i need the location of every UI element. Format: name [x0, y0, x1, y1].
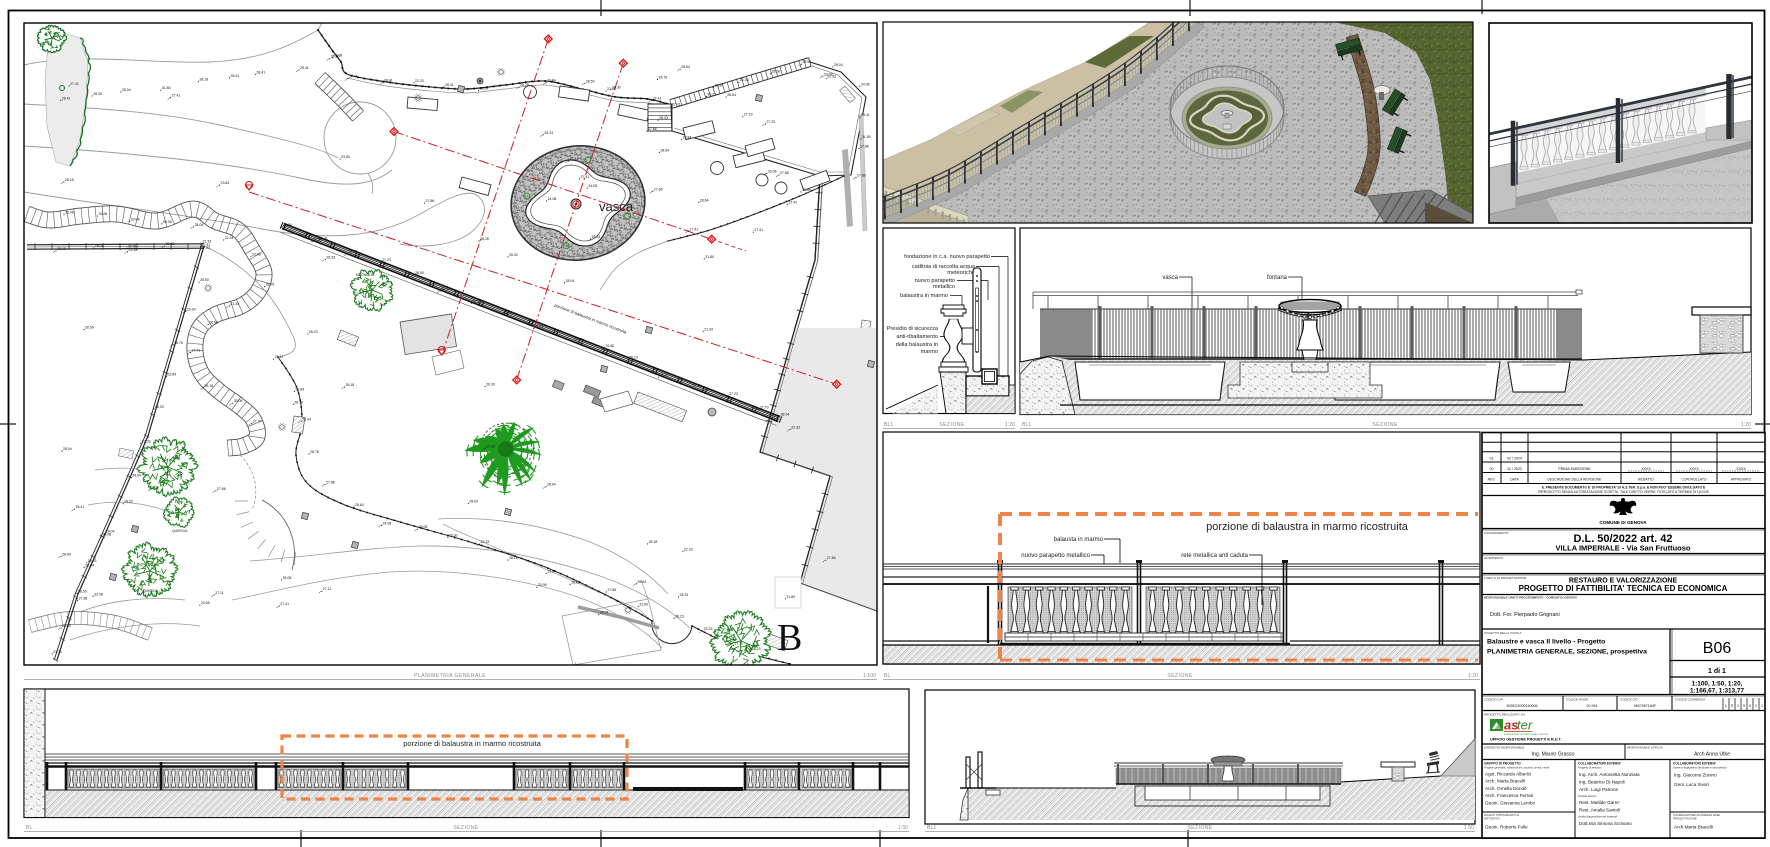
svg-text:SEZIONE: SEZIONE: [1372, 422, 1398, 428]
svg-text:23.84: 23.84: [547, 79, 556, 83]
svg-text:9: 9: [1749, 704, 1751, 708]
svg-text:31.80: 31.80: [162, 86, 171, 90]
svg-text:28.50: 28.50: [480, 86, 489, 90]
svg-text:B39D22000140006: B39D22000140006: [1507, 704, 1538, 708]
svg-text:B: B: [777, 617, 802, 659]
svg-text:20 994: 20 994: [1587, 704, 1598, 708]
svg-text:26.30: 26.30: [348, 250, 357, 254]
svg-text:33.08: 33.08: [99, 212, 108, 216]
svg-text:28.64: 28.64: [660, 148, 669, 152]
svg-text:Rest. Amalia Santoli: Rest. Amalia Santoli: [1579, 808, 1620, 813]
svg-text:02 / 2024: 02 / 2024: [1507, 457, 1522, 461]
svg-text:28.50: 28.50: [415, 271, 424, 275]
svg-text:27.41: 27.41: [319, 237, 328, 241]
svg-text:28.33: 28.33: [680, 593, 689, 597]
svg-text:ter: ter: [1517, 718, 1533, 733]
svg-text:22.33: 22.33: [481, 540, 490, 544]
svg-text:Ing. Beatrice Di Napoli: Ing. Beatrice Di Napoli: [1579, 780, 1625, 785]
svg-text:Balaustre e vasca II livello -: Balaustre e vasca II livello - Progetto: [1487, 639, 1605, 646]
svg-text:28.64: 28.64: [727, 93, 736, 97]
svg-text:27.86: 27.86: [860, 145, 869, 149]
svg-text:28.64: 28.64: [62, 552, 71, 556]
svg-text:CODICE COMMESSA: CODICE COMMESSA: [1675, 698, 1705, 702]
svg-text:99079571A9F: 99079571A9F: [1634, 704, 1657, 708]
svg-text:26.30: 26.30: [509, 253, 518, 257]
svg-text:22.33: 22.33: [791, 425, 800, 429]
svg-text:CONTROLLATO: CONTROLLATO: [1681, 478, 1706, 482]
svg-text:Opere di ingegneria struttural: Opere di ingegneria strutturale e natura…: [1673, 766, 1727, 770]
svg-text:9: 9: [1743, 704, 1745, 708]
svg-text:28.18: 28.18: [480, 237, 489, 241]
svg-text:27.11: 27.11: [672, 103, 681, 107]
svg-text:27.86: 27.86: [217, 487, 226, 491]
svg-text:Progetto di restauro: Progetto di restauro: [1578, 766, 1602, 770]
svg-text:26.30: 26.30: [486, 382, 495, 386]
svg-text:28.04: 28.04: [547, 483, 556, 487]
svg-text:28.50: 28.50: [85, 326, 94, 330]
svg-text:28.64: 28.64: [209, 321, 218, 325]
svg-text:28.64: 28.64: [681, 65, 690, 69]
svg-text:28.23: 28.23: [629, 355, 638, 359]
svg-text:28.76: 28.76: [294, 400, 303, 404]
svg-text:28.64: 28.64: [571, 581, 580, 585]
svg-text:1:166,67, 1:313,77: 1:166,67, 1:313,77: [1690, 688, 1744, 695]
svg-text:23.84: 23.84: [547, 569, 556, 573]
svg-text:28.04: 28.04: [95, 244, 104, 248]
svg-text:BL1: BL1: [884, 422, 893, 428]
svg-text:XXXX: XXXX: [1641, 467, 1651, 471]
svg-text:27.86: 27.86: [648, 127, 657, 131]
svg-text:28.50: 28.50: [78, 589, 87, 593]
svg-text:28.76: 28.76: [659, 76, 668, 80]
svg-text:27.41: 27.41: [581, 175, 590, 179]
svg-text:anti-ribaltamento: anti-ribaltamento: [896, 334, 938, 340]
svg-text:metallico: metallico: [933, 284, 955, 290]
svg-text:33.08: 33.08: [131, 217, 140, 221]
svg-text:PRIMA EMISSIONE: PRIMA EMISSIONE: [1558, 467, 1591, 471]
svg-text:28.23: 28.23: [707, 93, 716, 97]
svg-text:28.18: 28.18: [509, 556, 518, 560]
svg-text:BL: BL: [884, 673, 890, 679]
svg-text:27.86: 27.86: [857, 174, 866, 178]
svg-text:28.23: 28.23: [592, 235, 601, 239]
svg-text:24.08: 24.08: [383, 521, 392, 525]
svg-text:22.33: 22.33: [415, 79, 424, 83]
svg-text:21.34: 21.34: [225, 236, 234, 240]
svg-text:SEZIONE: SEZIONE: [1187, 825, 1213, 831]
svg-text:APPROVATO: APPROVATO: [1730, 478, 1752, 482]
svg-text:27.11: 27.11: [735, 641, 744, 645]
svg-text:1 di 1: 1 di 1: [1708, 668, 1726, 675]
svg-text:1:100, 1:50, 1:20,: 1:100, 1:50, 1:20,: [1692, 681, 1743, 688]
svg-text:28.23: 28.23: [309, 330, 318, 334]
svg-text:33.08: 33.08: [65, 210, 74, 214]
svg-text:31.80: 31.80: [802, 188, 811, 192]
svg-text:vasca: vasca: [1162, 275, 1178, 281]
svg-text:DESCRIZIONE DELLA REVISIONE: DESCRIZIONE DELLA REVISIONE: [1547, 478, 1602, 482]
svg-text:22.33: 22.33: [827, 75, 836, 79]
svg-text:28.50: 28.50: [772, 70, 781, 74]
svg-text:XXXX: XXXX: [1736, 467, 1746, 471]
svg-text:Arch. Francesca Ferrari: Arch. Francesca Ferrari: [1485, 793, 1533, 798]
svg-text:AZIENDA SERVIZI TERRITORIALI G: AZIENDA SERVIZI TERRITORIALI GENOVA: [1504, 733, 1548, 736]
svg-text:Arch Anna Utke: Arch Anna Utke: [1694, 752, 1730, 758]
svg-text:27.11: 27.11: [535, 324, 544, 328]
svg-text:28.18: 28.18: [199, 78, 208, 82]
svg-text:27.23: 27.23: [486, 444, 495, 448]
svg-text:VILLA IMPERIALE - Via San Frut: VILLA IMPERIALE - Via San Fruttuoso: [1555, 544, 1690, 553]
svg-text:BL1: BL1: [1022, 422, 1031, 428]
svg-text:SEZIONE: SEZIONE: [939, 422, 965, 428]
svg-text:33.08: 33.08: [234, 399, 243, 403]
svg-text:28.04: 28.04: [302, 417, 311, 421]
svg-text:CODICE CIG: CODICE CIG: [1620, 698, 1639, 702]
svg-text:COLLABORATORI ESTERNI: COLLABORATORI ESTERNI: [1578, 762, 1620, 766]
svg-text:27.23: 27.23: [473, 300, 482, 304]
svg-text:31.80: 31.80: [862, 135, 871, 139]
svg-text:28.04: 28.04: [85, 564, 94, 568]
svg-text:L: L: [1725, 704, 1727, 708]
svg-text:Arch Marta Bracelli: Arch Marta Bracelli: [1674, 825, 1713, 830]
svg-text:LIVELLO DI PROGETTAZIONE: LIVELLO DI PROGETTAZIONE: [1484, 576, 1527, 580]
svg-text:28.23: 28.23: [124, 500, 133, 504]
svg-text:MAGNOLIA: MAGNOLIA: [356, 273, 375, 277]
svg-text:1: 1: [1755, 704, 1757, 708]
svg-text:26.30: 26.30: [187, 307, 196, 311]
svg-text:28.41: 28.41: [300, 66, 309, 70]
svg-text:33.08: 33.08: [503, 311, 512, 315]
svg-text:33.08: 33.08: [538, 583, 547, 587]
svg-text:27.11: 27.11: [659, 373, 668, 377]
svg-text:27.41: 27.41: [70, 82, 79, 86]
svg-text:27.86: 27.86: [326, 481, 335, 485]
svg-text:PROGETTO REALIZZATO DA: PROGETTO REALIZZATO DA: [1484, 713, 1525, 717]
svg-text:27.41: 27.41: [192, 348, 201, 352]
svg-text:28.33: 28.33: [155, 405, 164, 409]
svg-text:Dott.ssa Simona Scrivano: Dott.ssa Simona Scrivano: [1579, 821, 1632, 826]
svg-text:SEZIONE: SEZIONE: [453, 825, 479, 831]
svg-text:porzione di balaustra in marmo: porzione di balaustra in marmo ricostrui…: [1206, 521, 1409, 533]
svg-text:ORTOFOTO: ORTOFOTO: [1484, 817, 1501, 821]
svg-text:33.08: 33.08: [283, 576, 292, 580]
svg-text:Ing. Arch. Antonietta Nunziata: Ing. Arch. Antonietta Nunziata: [1579, 772, 1640, 777]
svg-text:33.08: 33.08: [768, 170, 777, 174]
svg-text:PROGETTAZIONE: PROGETTAZIONE: [1673, 817, 1697, 821]
svg-text:REV.: REV.: [1488, 478, 1496, 482]
svg-text:RESPONSABILE UNICO PROCEDIMENT: RESPONSABILE UNICO PROCEDIMENTO - COMUNE…: [1484, 596, 1577, 600]
svg-text:27.86: 27.86: [79, 596, 88, 600]
svg-text:28.33: 28.33: [441, 287, 450, 291]
svg-text:porzione di balaustra in marmo: porzione di balaustra in marmo ricostrui…: [403, 739, 541, 748]
svg-text:31.80: 31.80: [606, 344, 615, 348]
svg-text:28.23: 28.23: [88, 559, 97, 563]
svg-text:OGGETTO DELLA TAVOLA: OGGETTO DELLA TAVOLA: [1484, 631, 1521, 635]
svg-text:RESPONSABILE UFFICIO: RESPONSABILE UFFICIO: [1627, 746, 1664, 750]
svg-text:fontana: fontana: [1267, 275, 1288, 281]
svg-text:Presidio di sicurezza: Presidio di sicurezza: [887, 326, 939, 332]
svg-text:27.70: 27.70: [150, 486, 159, 490]
svg-text:28.64: 28.64: [469, 500, 478, 504]
svg-text:33.08: 33.08: [419, 525, 428, 529]
svg-text:COMUNE DI GENOVA: COMUNE DI GENOVA: [1599, 520, 1647, 525]
svg-text:balausta in marmo: balausta in marmo: [1054, 537, 1104, 543]
svg-text:GRUPPO DI PROGETTO: GRUPPO DI PROGETTO: [1484, 762, 1521, 766]
svg-text:BL: BL: [26, 825, 32, 831]
svg-text:28.04: 28.04: [600, 611, 609, 615]
svg-text:27.70: 27.70: [574, 338, 583, 342]
svg-text:31.80: 31.80: [786, 595, 795, 599]
svg-text:CODICE MOISE: CODICE MOISE: [1566, 698, 1589, 702]
svg-text:28.50: 28.50: [802, 60, 811, 64]
svg-text:Progetto generale, infrastrutt: Progetto generale, infrastrutture, impia…: [1484, 766, 1550, 770]
svg-text:meteoriche: meteoriche: [947, 270, 975, 276]
svg-text:1:20: 1:20: [1468, 673, 1478, 679]
svg-text:28.18: 28.18: [57, 247, 66, 251]
svg-text:21.34: 21.34: [740, 78, 749, 82]
svg-text:UFFICIO GESTIONE PROGETTI E R.: UFFICIO GESTIONE PROGETTI E R.U.T.: [1490, 738, 1562, 742]
svg-text:Geol. Luca Sivori: Geol. Luca Sivori: [1674, 782, 1709, 787]
svg-text:27.41: 27.41: [570, 157, 579, 161]
svg-text:27.41: 27.41: [275, 355, 284, 359]
svg-text:COLLABORATORI ESTERNI: COLLABORATORI ESTERNI: [1673, 762, 1715, 766]
svg-text:DIRIGENTE RESPONSABILE: DIRIGENTE RESPONSABILE: [1484, 746, 1525, 750]
svg-text:Arch. Ornella Dondè: Arch. Ornella Dondè: [1485, 786, 1527, 791]
svg-text:33.08: 33.08: [252, 252, 261, 256]
svg-text:DATA: DATA: [1510, 478, 1519, 482]
svg-text:1:50: 1:50: [898, 825, 908, 831]
svg-text:23.84: 23.84: [341, 155, 350, 159]
svg-text:27.11: 27.11: [693, 384, 702, 388]
svg-text:RIPRODOTTO SENZA AUTORIZZAZION: RIPRODOTTO SENZA AUTORIZZAZIONE SCRITTA.…: [1538, 490, 1709, 494]
svg-text:27.70: 27.70: [760, 405, 769, 409]
svg-text:28.04: 28.04: [195, 223, 204, 227]
svg-text:31.80: 31.80: [705, 255, 714, 259]
svg-text:28.41: 28.41: [256, 70, 265, 74]
svg-text:22.33: 22.33: [142, 440, 151, 444]
svg-text:QUERCIA: QUERCIA: [143, 589, 159, 593]
svg-text:27.86: 27.86: [827, 556, 836, 560]
svg-text:27.11: 27.11: [323, 587, 332, 591]
svg-text:27.41: 27.41: [653, 96, 662, 100]
svg-text:28.33: 28.33: [326, 255, 335, 259]
svg-text:28.76: 28.76: [310, 450, 319, 454]
svg-text:28.18: 28.18: [346, 383, 355, 387]
svg-text:28.50: 28.50: [200, 278, 209, 282]
svg-text:24.08: 24.08: [334, 54, 343, 58]
svg-text:28.41: 28.41: [62, 96, 71, 100]
svg-text:28.04: 28.04: [834, 63, 843, 67]
svg-text:28.50: 28.50: [586, 79, 595, 83]
svg-text:28.41: 28.41: [384, 79, 393, 83]
svg-text:nuovo parapetto metallico: nuovo parapetto metallico: [1021, 553, 1090, 559]
svg-text:27.70: 27.70: [253, 420, 262, 424]
svg-text:28.41: 28.41: [861, 113, 870, 117]
svg-text:28.04: 28.04: [566, 279, 575, 283]
svg-text:27.86: 27.86: [780, 171, 789, 175]
svg-text:27.86: 27.86: [426, 199, 435, 203]
svg-text:28.23: 28.23: [675, 614, 684, 618]
svg-text:Rest. Matilde Garre': Rest. Matilde Garre': [1579, 800, 1620, 805]
svg-text:Arch. Luigi Patrone: Arch. Luigi Patrone: [1579, 787, 1619, 792]
svg-text:1:20: 1:20: [1741, 422, 1751, 428]
svg-text:27.41: 27.41: [172, 94, 181, 98]
svg-text:28.18: 28.18: [166, 242, 175, 246]
svg-text:27.41: 27.41: [202, 243, 211, 247]
svg-text:PLANIMETRIA GENERALE: PLANIMETRIA GENERALE: [414, 673, 486, 679]
svg-text:24.08: 24.08: [588, 184, 597, 188]
svg-text:QUERCIA: QUERCIA: [172, 529, 188, 533]
svg-text:Analisi diagnostiche dei mater: Analisi diagnostiche dei materiali: [1577, 815, 1617, 819]
svg-text:Dott. For. Pierpaolo Grignani: Dott. For. Pierpaolo Grignani: [1490, 612, 1560, 618]
svg-text:28.04: 28.04: [781, 412, 790, 416]
svg-text:28.50: 28.50: [715, 83, 724, 87]
svg-text:28.41: 28.41: [445, 83, 454, 87]
svg-text:27.41: 27.41: [754, 228, 763, 232]
svg-text:23.84: 23.84: [296, 388, 305, 392]
svg-text:della balaustra in: della balaustra in: [896, 342, 938, 348]
svg-text:28.64: 28.64: [700, 198, 709, 202]
svg-text:1:20: 1:20: [1005, 422, 1015, 428]
svg-text:28.76: 28.76: [174, 341, 183, 345]
svg-text:27.86: 27.86: [283, 223, 292, 227]
svg-text:28.18: 28.18: [65, 178, 74, 182]
svg-text:27.70: 27.70: [53, 650, 62, 654]
svg-text:INTERVENTO: INTERVENTO: [1484, 556, 1504, 560]
svg-text:balaustra in marmo: balaustra in marmo: [900, 293, 948, 299]
svg-text:PLANIMETRIA GENERALE, SEZIONE,: PLANIMETRIA GENERALE, SEZIONE, prospetti…: [1487, 649, 1647, 656]
svg-text:21.34: 21.34: [129, 248, 138, 252]
svg-text:27.23: 27.23: [767, 120, 776, 124]
svg-text:27.86: 27.86: [608, 588, 617, 592]
svg-text:marmo: marmo: [921, 349, 938, 355]
svg-text:22.33: 22.33: [704, 627, 713, 631]
svg-text:Ing. Giacomo Zunino: Ing. Giacomo Zunino: [1674, 773, 1717, 778]
svg-text:28.76: 28.76: [520, 83, 529, 87]
svg-text:fondazione in c.a. nuovo parap: fondazione in c.a. nuovo parapetto: [904, 254, 990, 260]
svg-text:28.41: 28.41: [76, 505, 85, 509]
svg-text:28.33: 28.33: [93, 92, 102, 96]
svg-text:Geom. Giovanna Lembo: Geom. Giovanna Lembo: [1485, 800, 1535, 805]
svg-text:27.86: 27.86: [654, 187, 663, 191]
svg-text:28.33: 28.33: [544, 131, 553, 135]
svg-text:B06: B06: [1703, 640, 1732, 657]
svg-text:24.08: 24.08: [548, 197, 557, 201]
svg-text:28.04: 28.04: [63, 447, 72, 451]
svg-text:28.64: 28.64: [355, 503, 364, 507]
svg-text:28.23: 28.23: [752, 647, 761, 651]
svg-text:Scheda tecnica: Scheda tecnica: [1578, 794, 1597, 798]
svg-text:33.08: 33.08: [163, 220, 172, 224]
svg-text:24.08: 24.08: [103, 532, 112, 536]
svg-text:11 / 2023: 11 / 2023: [1507, 467, 1522, 471]
svg-text:1:50: 1:50: [1464, 825, 1474, 831]
svg-text:XXXX: XXXX: [1689, 467, 1699, 471]
svg-text:IL PRESENTE DOCUMENTO E' DI PR: IL PRESENTE DOCUMENTO E' DI PROPRIETA' D…: [1542, 486, 1706, 490]
svg-text:27.11: 27.11: [215, 591, 224, 595]
svg-text:28.33: 28.33: [659, 116, 668, 120]
svg-text:24.08: 24.08: [201, 601, 210, 605]
svg-text:28.04: 28.04: [122, 88, 131, 92]
svg-text:23.84: 23.84: [221, 181, 230, 185]
svg-text:REDATTO: REDATTO: [1638, 478, 1654, 482]
svg-text:01: 01: [1490, 457, 1494, 461]
svg-text:24.08: 24.08: [861, 82, 870, 86]
svg-text:23.84: 23.84: [683, 136, 692, 140]
svg-text:27.41: 27.41: [280, 602, 289, 606]
svg-text:22.33: 22.33: [684, 547, 693, 551]
svg-text:27.23: 27.23: [744, 113, 753, 117]
svg-text:26.30: 26.30: [449, 533, 458, 537]
svg-text:28.18: 28.18: [649, 540, 658, 544]
svg-text:27.41: 27.41: [349, 75, 358, 79]
svg-text:33.08: 33.08: [94, 592, 103, 596]
svg-text:1: 1: [1761, 704, 1763, 708]
svg-text:Arch. Marta Bracelli: Arch. Marta Bracelli: [1485, 779, 1525, 784]
svg-text:27.41: 27.41: [690, 227, 699, 231]
svg-text:28.76: 28.76: [266, 283, 275, 287]
svg-text:PROGETTO DI FATTIBILITA' TECNI: PROGETTO DI FATTIBILITA' TECNICA ED ECON…: [1519, 584, 1728, 593]
svg-text:28.64: 28.64: [637, 580, 646, 584]
svg-text:27.41: 27.41: [789, 200, 798, 204]
svg-text:00: 00: [1490, 467, 1494, 471]
svg-text:21.34: 21.34: [230, 302, 239, 306]
svg-text:27.23: 27.23: [382, 258, 391, 262]
svg-text:FINANZIAMENTO: FINANZIAMENTO: [1484, 531, 1509, 535]
svg-text:1: 1: [1737, 704, 1739, 708]
svg-text:SEZIONE: SEZIONE: [1167, 673, 1193, 679]
svg-text:Geom. Roberto Fulle: Geom. Roberto Fulle: [1485, 825, 1528, 830]
svg-text:21.34: 21.34: [607, 87, 616, 91]
svg-text:21.34: 21.34: [704, 327, 713, 331]
svg-text:Ing. Mauro Grasso: Ing. Mauro Grasso: [1532, 752, 1575, 758]
svg-text:1:100: 1:100: [863, 673, 876, 679]
svg-text:28.41: 28.41: [231, 74, 240, 78]
svg-text:28.18: 28.18: [204, 384, 213, 388]
svg-text:28.50: 28.50: [62, 624, 71, 628]
svg-text:BL1: BL1: [927, 825, 936, 831]
svg-text:Agot. Riccardo Alberici: Agot. Riccardo Alberici: [1485, 772, 1531, 777]
svg-text:CODICE CUP: CODICE CUP: [1484, 698, 1503, 702]
svg-text:27.23: 27.23: [729, 392, 738, 396]
svg-text:23.84: 23.84: [167, 372, 176, 376]
svg-text:28.64: 28.64: [132, 474, 141, 478]
svg-text:31.80: 31.80: [639, 602, 648, 606]
svg-text:rete metallica anti caduta: rete metallica anti caduta: [1181, 553, 1248, 559]
